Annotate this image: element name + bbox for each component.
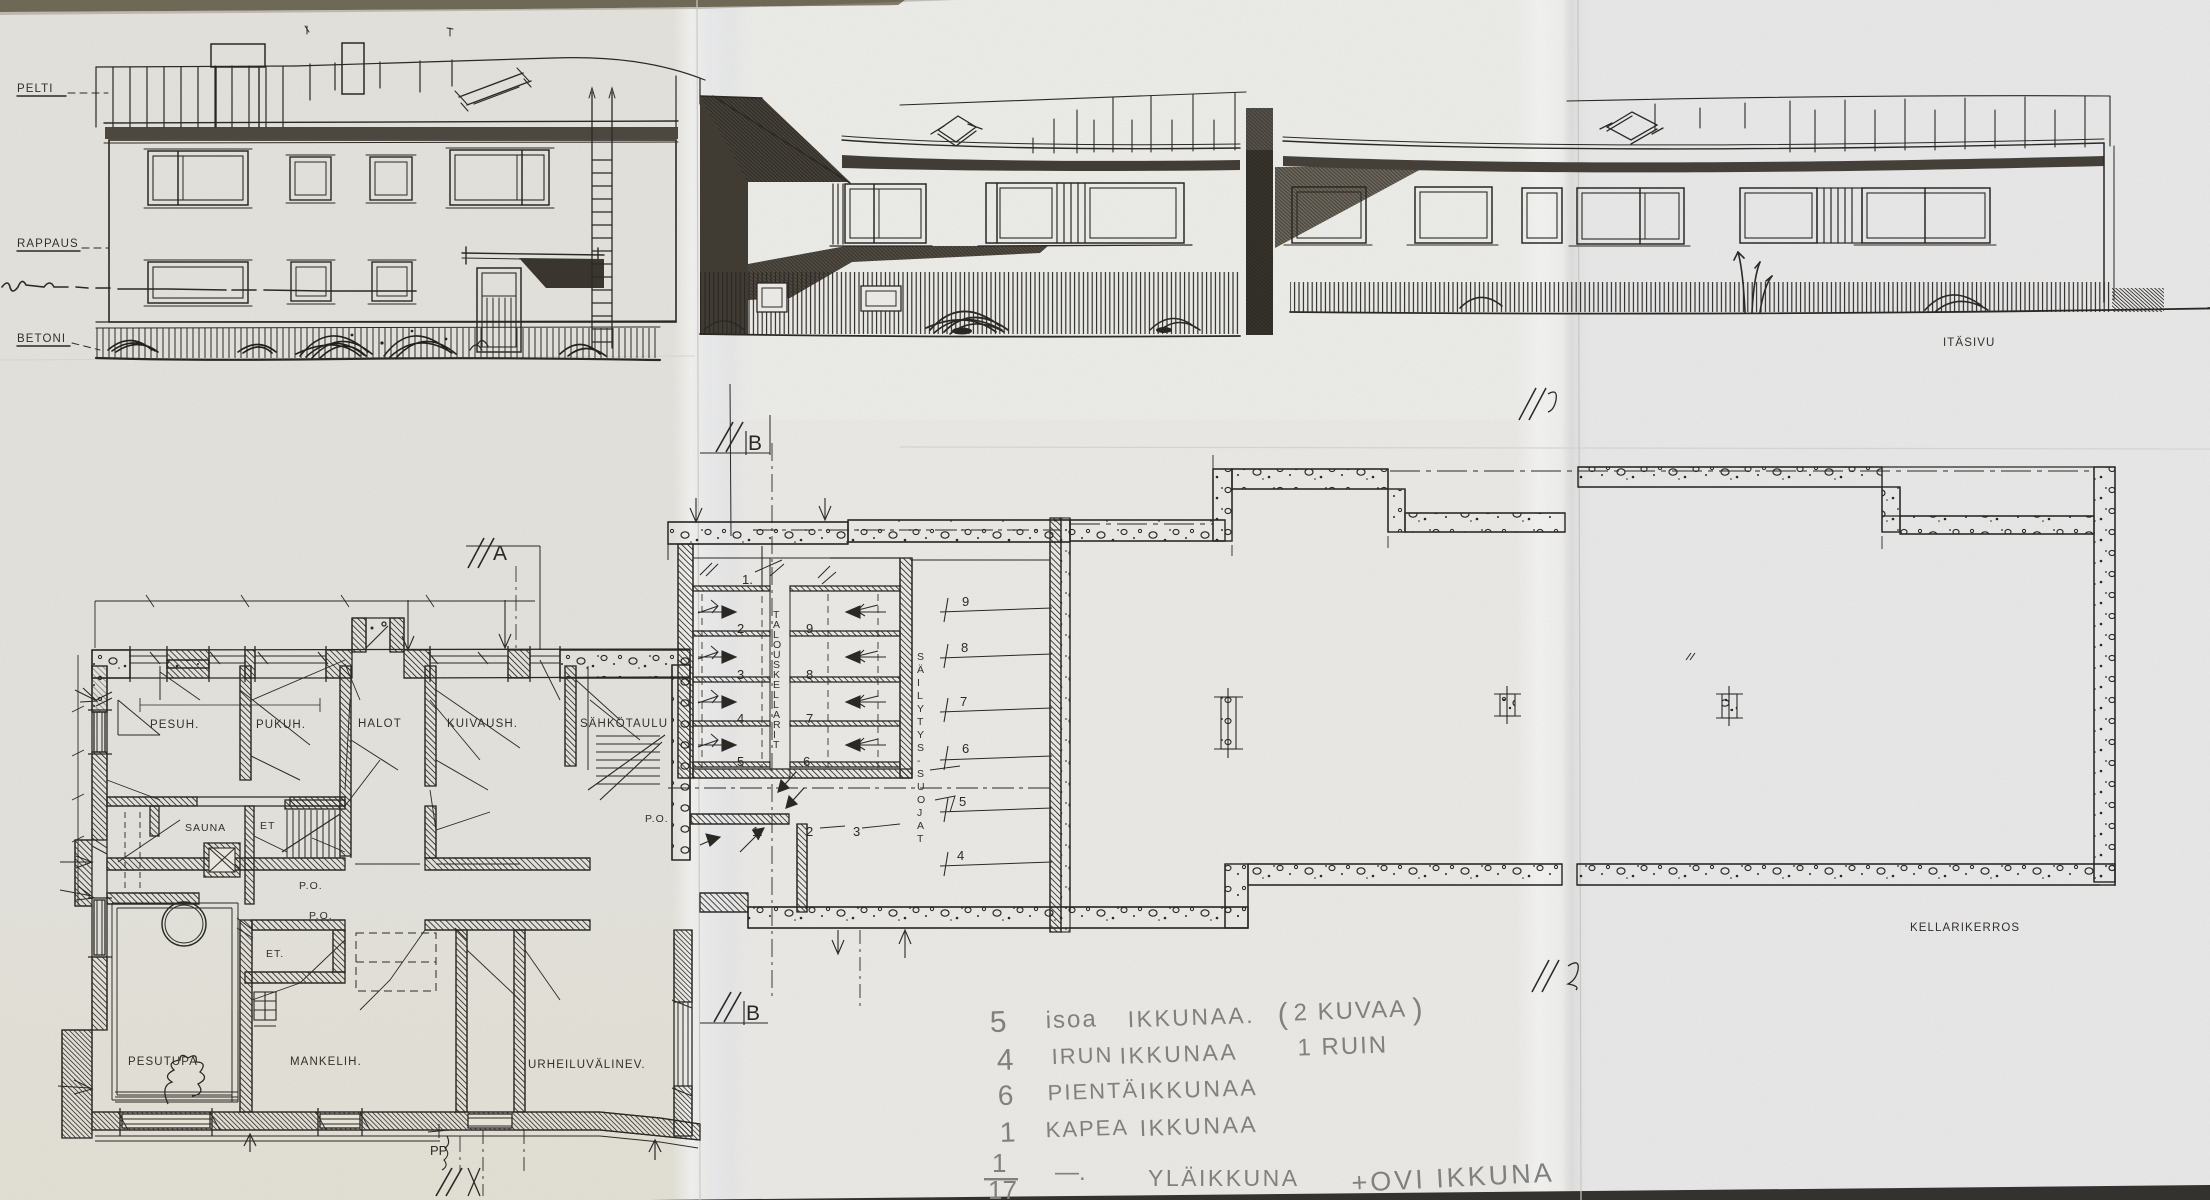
svg-text:17: 17 <box>988 1175 1017 1200</box>
svg-text:IKKUNAA: IKKUNAA <box>1139 1111 1258 1141</box>
svg-text:9: 9 <box>962 594 969 609</box>
svg-text:PP: PP <box>430 1143 447 1158</box>
svg-text:A: A <box>493 542 507 565</box>
svg-text:4: 4 <box>996 1044 1014 1078</box>
svg-text:IKKUNAA.: IKKUNAA. <box>1127 1002 1255 1032</box>
svg-text:8: 8 <box>806 667 813 682</box>
svg-text:6: 6 <box>803 754 810 769</box>
svg-text:1: 1 <box>992 1148 1006 1178</box>
svg-text:B: B <box>746 1002 760 1025</box>
svg-text:KAPEA: KAPEA <box>1045 1114 1129 1142</box>
svg-text:YLÄIKKUNA: YLÄIKKUNA <box>1148 1165 1300 1191</box>
svg-text:PESUH.: PESUH. <box>150 719 199 731</box>
svg-text:HALOT: HALOT <box>358 718 402 730</box>
svg-text:2: 2 <box>806 824 813 839</box>
svg-text:5: 5 <box>989 1006 1007 1040</box>
svg-text:3: 3 <box>853 824 860 839</box>
svg-text:IKKUNAA: IKKUNAA <box>1119 1039 1238 1069</box>
svg-text:6: 6 <box>997 1080 1014 1112</box>
svg-text:2 KUVAA: 2 KUVAA <box>1293 996 1407 1027</box>
svg-text:IKKUNAA: IKKUNAA <box>1139 1074 1258 1104</box>
svg-text:4: 4 <box>957 848 964 863</box>
svg-text:2: 2 <box>737 621 744 636</box>
svg-text:TALOUSKELLARIT: TALOUSKELLARIT <box>773 609 782 751</box>
svg-text:PESUTUPA: PESUTUPA <box>128 1056 198 1068</box>
svg-text:ET.: ET. <box>266 948 284 960</box>
svg-text:P.O.: P.O. <box>645 813 669 825</box>
svg-text:3: 3 <box>737 667 744 682</box>
svg-text:): ) <box>1412 993 1423 1026</box>
svg-text:SAUNA: SAUNA <box>185 822 226 834</box>
svg-text:1: 1 <box>999 1116 1016 1148</box>
svg-text:1.: 1. <box>752 824 763 839</box>
svg-text:IRUN: IRUN <box>1051 1042 1114 1069</box>
svg-text:1 RUIN: 1 RUIN <box>1297 1031 1389 1061</box>
svg-text:—.: —. <box>1055 1159 1086 1186</box>
svg-text:P.O.: P.O. <box>299 880 323 892</box>
svg-text:URHEILUVÄLINEV.: URHEILUVÄLINEV. <box>528 1059 646 1071</box>
svg-text:BETONI: BETONI <box>17 333 66 345</box>
svg-text:8: 8 <box>961 640 968 655</box>
svg-text:MANKELIH.: MANKELIH. <box>290 1056 362 1068</box>
svg-text:ET: ET <box>260 820 275 832</box>
svg-text:(: ( <box>1277 998 1288 1031</box>
svg-text:7: 7 <box>960 694 967 709</box>
svg-text:5: 5 <box>737 754 744 769</box>
svg-text:9: 9 <box>806 621 813 636</box>
svg-text:PIENTÄ: PIENTÄ <box>1047 1077 1139 1105</box>
svg-text:P.O.: P.O. <box>309 910 333 922</box>
svg-text:5: 5 <box>959 794 966 809</box>
svg-text:SÄHKÖTAULU: SÄHKÖTAULU <box>580 718 668 730</box>
svg-text:7: 7 <box>806 711 813 726</box>
svg-text:4: 4 <box>737 711 744 726</box>
svg-text:isoa: isoa <box>1045 1005 1098 1034</box>
svg-text:1.: 1. <box>742 572 753 587</box>
svg-text:KUIVAUSH.: KUIVAUSH. <box>447 718 518 730</box>
svg-text:ITÄSIVU: ITÄSIVU <box>1943 337 1995 349</box>
svg-text:KELLARIKERROS: KELLARIKERROS <box>1910 922 2020 934</box>
svg-text:RAPPAUS: RAPPAUS <box>17 238 79 250</box>
svg-text:6: 6 <box>962 741 969 756</box>
svg-text:PELTI: PELTI <box>17 83 54 95</box>
svg-text:B: B <box>748 432 762 455</box>
svg-text:PUKUH.: PUKUH. <box>256 719 306 731</box>
